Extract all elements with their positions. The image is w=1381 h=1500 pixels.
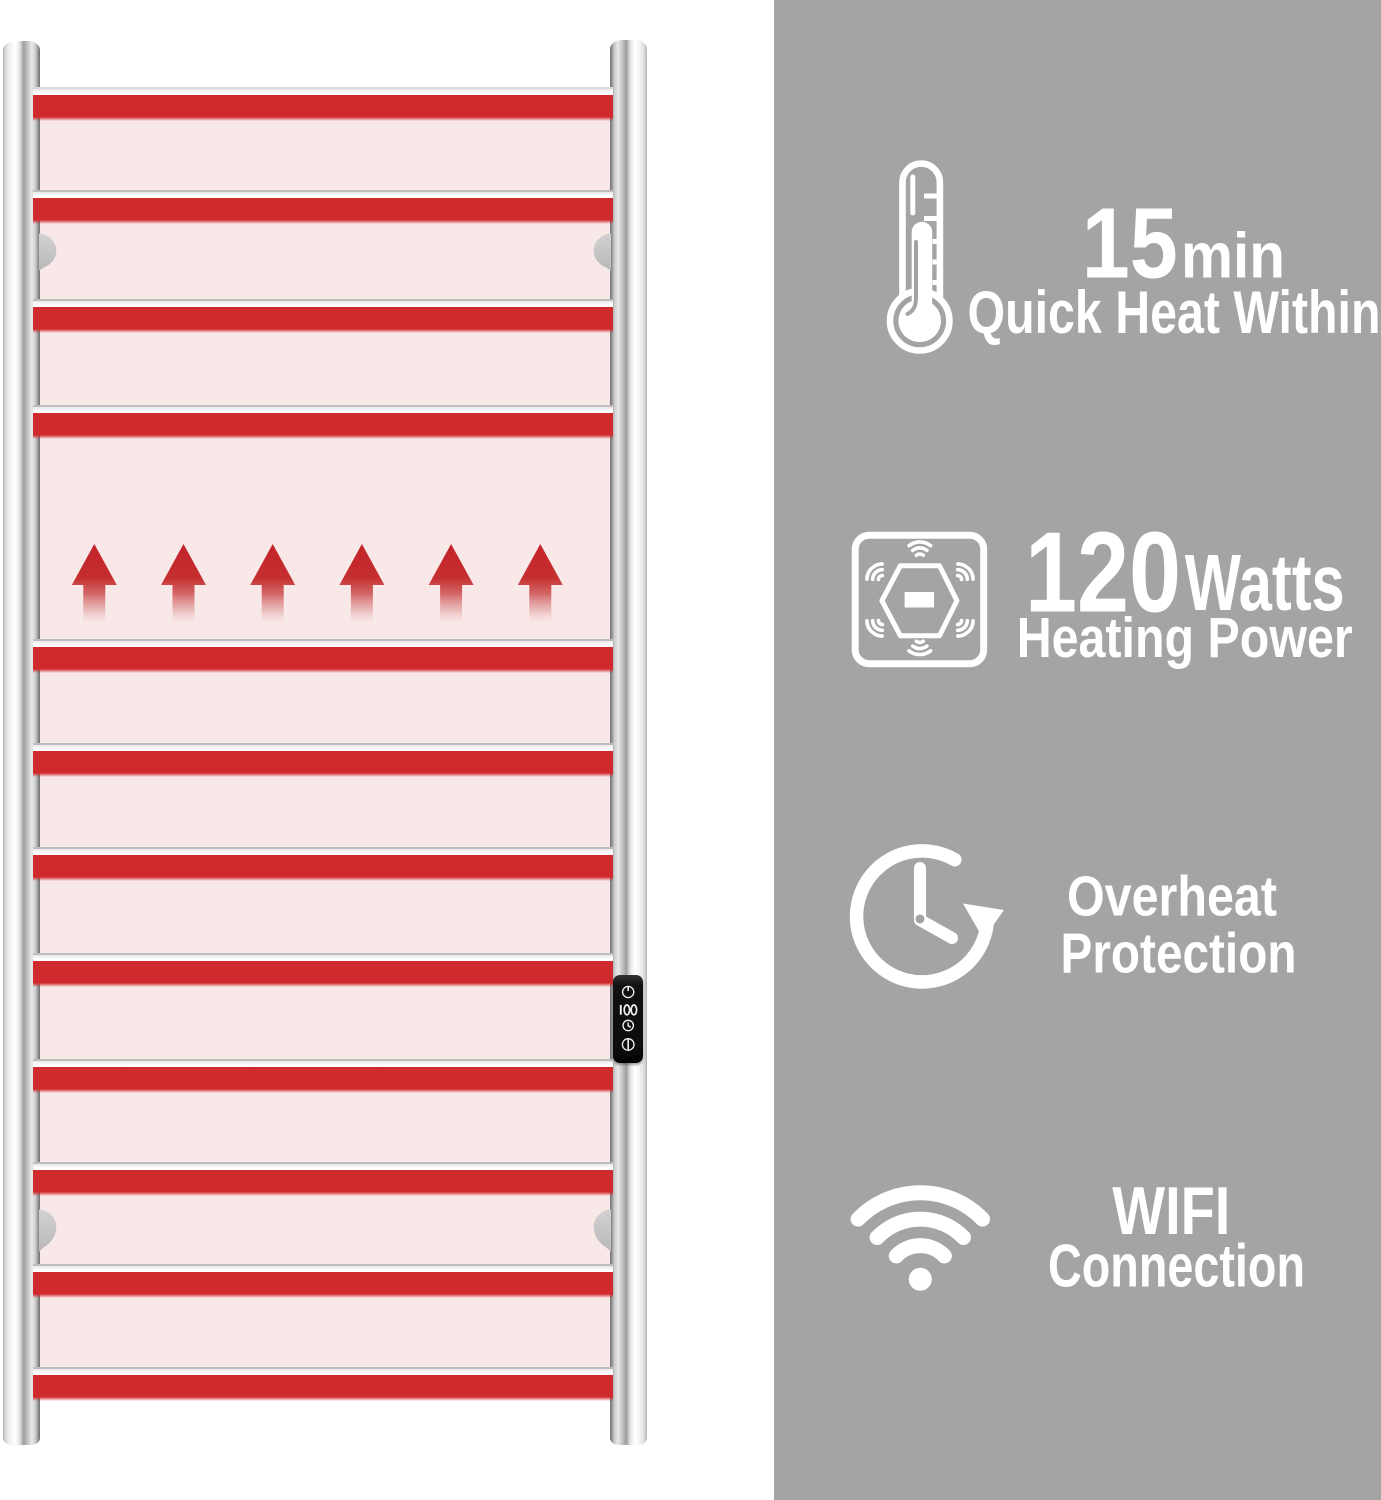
- svg-text:Heating Power: Heating Power: [1017, 606, 1353, 670]
- svg-text:Overheat: Overheat: [1067, 865, 1277, 929]
- svg-text:Quick Heat Within: Quick Heat Within: [968, 279, 1381, 346]
- svg-text:Protection: Protection: [1061, 922, 1297, 986]
- svg-text:Connection: Connection: [1048, 1232, 1305, 1299]
